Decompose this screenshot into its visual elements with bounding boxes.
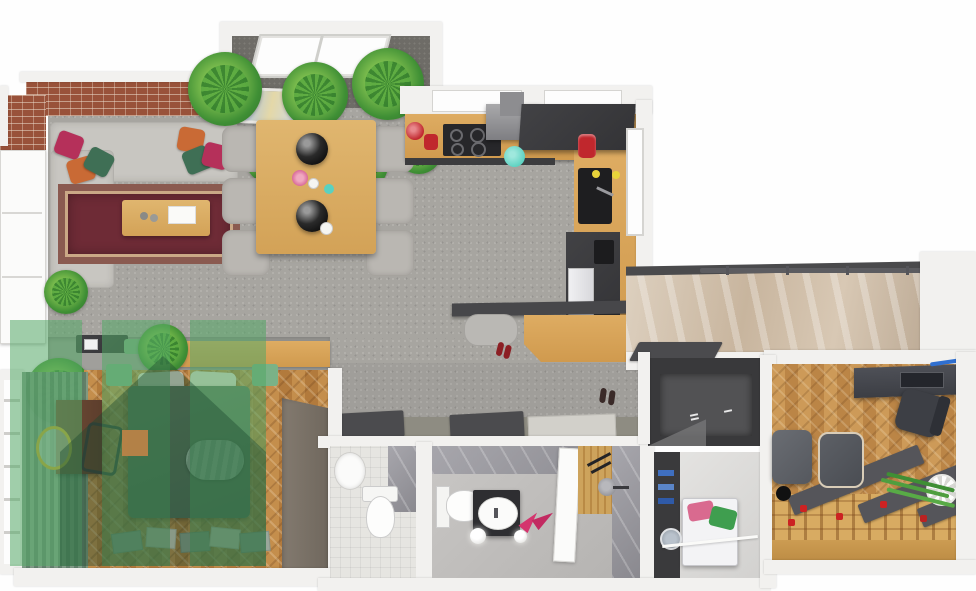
- floor-paper: [145, 527, 176, 549]
- table-cup-white: [320, 222, 333, 235]
- cooktop-burner: [471, 142, 486, 157]
- hall-closet-divider-wall: [638, 352, 650, 444]
- wardrobe: [282, 398, 330, 574]
- coffee-table-tray: [168, 206, 196, 224]
- floor-lamp: [776, 486, 791, 501]
- closet-carpet: [660, 374, 752, 436]
- red-kettle: [406, 122, 424, 140]
- sphere-floor-lamp: [514, 530, 527, 543]
- bath-bottom-wall: [318, 578, 770, 591]
- window-door-divider: [2, 212, 42, 214]
- red-stand-mixer: [578, 134, 596, 158]
- floor-paper: [209, 526, 241, 549]
- railing-bar: [700, 268, 922, 273]
- teal-bowl: [504, 146, 525, 167]
- coffee-table: [122, 200, 210, 236]
- coffee-table-decor: [140, 212, 148, 220]
- bedroom-window-frames: [4, 380, 20, 564]
- floor-paper: [179, 531, 210, 553]
- kitchen-right-window: [626, 128, 644, 236]
- wc-toilet-bowl: [366, 496, 395, 538]
- potted-plant: [282, 62, 348, 128]
- nightstand-green: [106, 364, 132, 386]
- sideboard-books: [84, 339, 98, 350]
- coffee-machine: [594, 240, 614, 264]
- nightstand-green: [252, 364, 278, 386]
- pendant-lamp: [296, 133, 328, 165]
- office-right-wall: [956, 352, 976, 568]
- kitchen-counter-front-edge: [405, 158, 555, 165]
- wc-marble-wall: [388, 446, 416, 512]
- shower-marble-wall: [612, 446, 640, 578]
- potted-plant: [188, 52, 262, 126]
- laptop: [900, 372, 944, 388]
- bath-laundry-divider-wall: [640, 440, 654, 588]
- hallway-pouf: [464, 314, 518, 346]
- shoe-bench: [524, 315, 630, 362]
- outer-wall-left: [0, 86, 8, 146]
- table-cup-white: [308, 178, 319, 189]
- lounge-chair: [772, 430, 812, 484]
- bed-folded-throw: [186, 440, 244, 480]
- red-canister: [424, 134, 438, 150]
- potted-plant: [138, 324, 188, 374]
- wc-washbasin: [334, 452, 366, 490]
- potted-plant: [44, 270, 88, 314]
- round-gold-mirror: [36, 426, 72, 470]
- floor-plan-scene: [0, 0, 976, 591]
- railing-post: [726, 266, 729, 275]
- floor-paper: [239, 531, 271, 554]
- lemon: [592, 170, 600, 178]
- upper-cabinets-dark: [518, 104, 635, 150]
- laundry-shelf-items: [658, 470, 674, 476]
- table-flowers: [292, 170, 308, 186]
- vanity-basin: [478, 497, 518, 530]
- cooktop-burner: [451, 143, 464, 156]
- office-bottom-wall: [764, 560, 976, 574]
- shower-arm: [613, 486, 629, 489]
- vanity-faucet: [494, 508, 498, 518]
- sphere-floor-lamp: [470, 528, 486, 544]
- lemon: [612, 171, 620, 179]
- cooktop-burner: [450, 129, 463, 142]
- window-door-panels: [0, 150, 46, 344]
- bedroom-bottom-wall: [14, 568, 336, 586]
- wc-bath-divider-wall: [416, 442, 432, 586]
- table-cup-teal: [324, 184, 334, 194]
- floor-paper: [111, 530, 143, 554]
- platform-front-edge: [772, 540, 956, 562]
- red-tool-bits: [800, 505, 807, 512]
- ottoman-tufted: [818, 432, 864, 488]
- window-door-divider: [2, 276, 42, 278]
- cooktop-burner: [470, 128, 485, 143]
